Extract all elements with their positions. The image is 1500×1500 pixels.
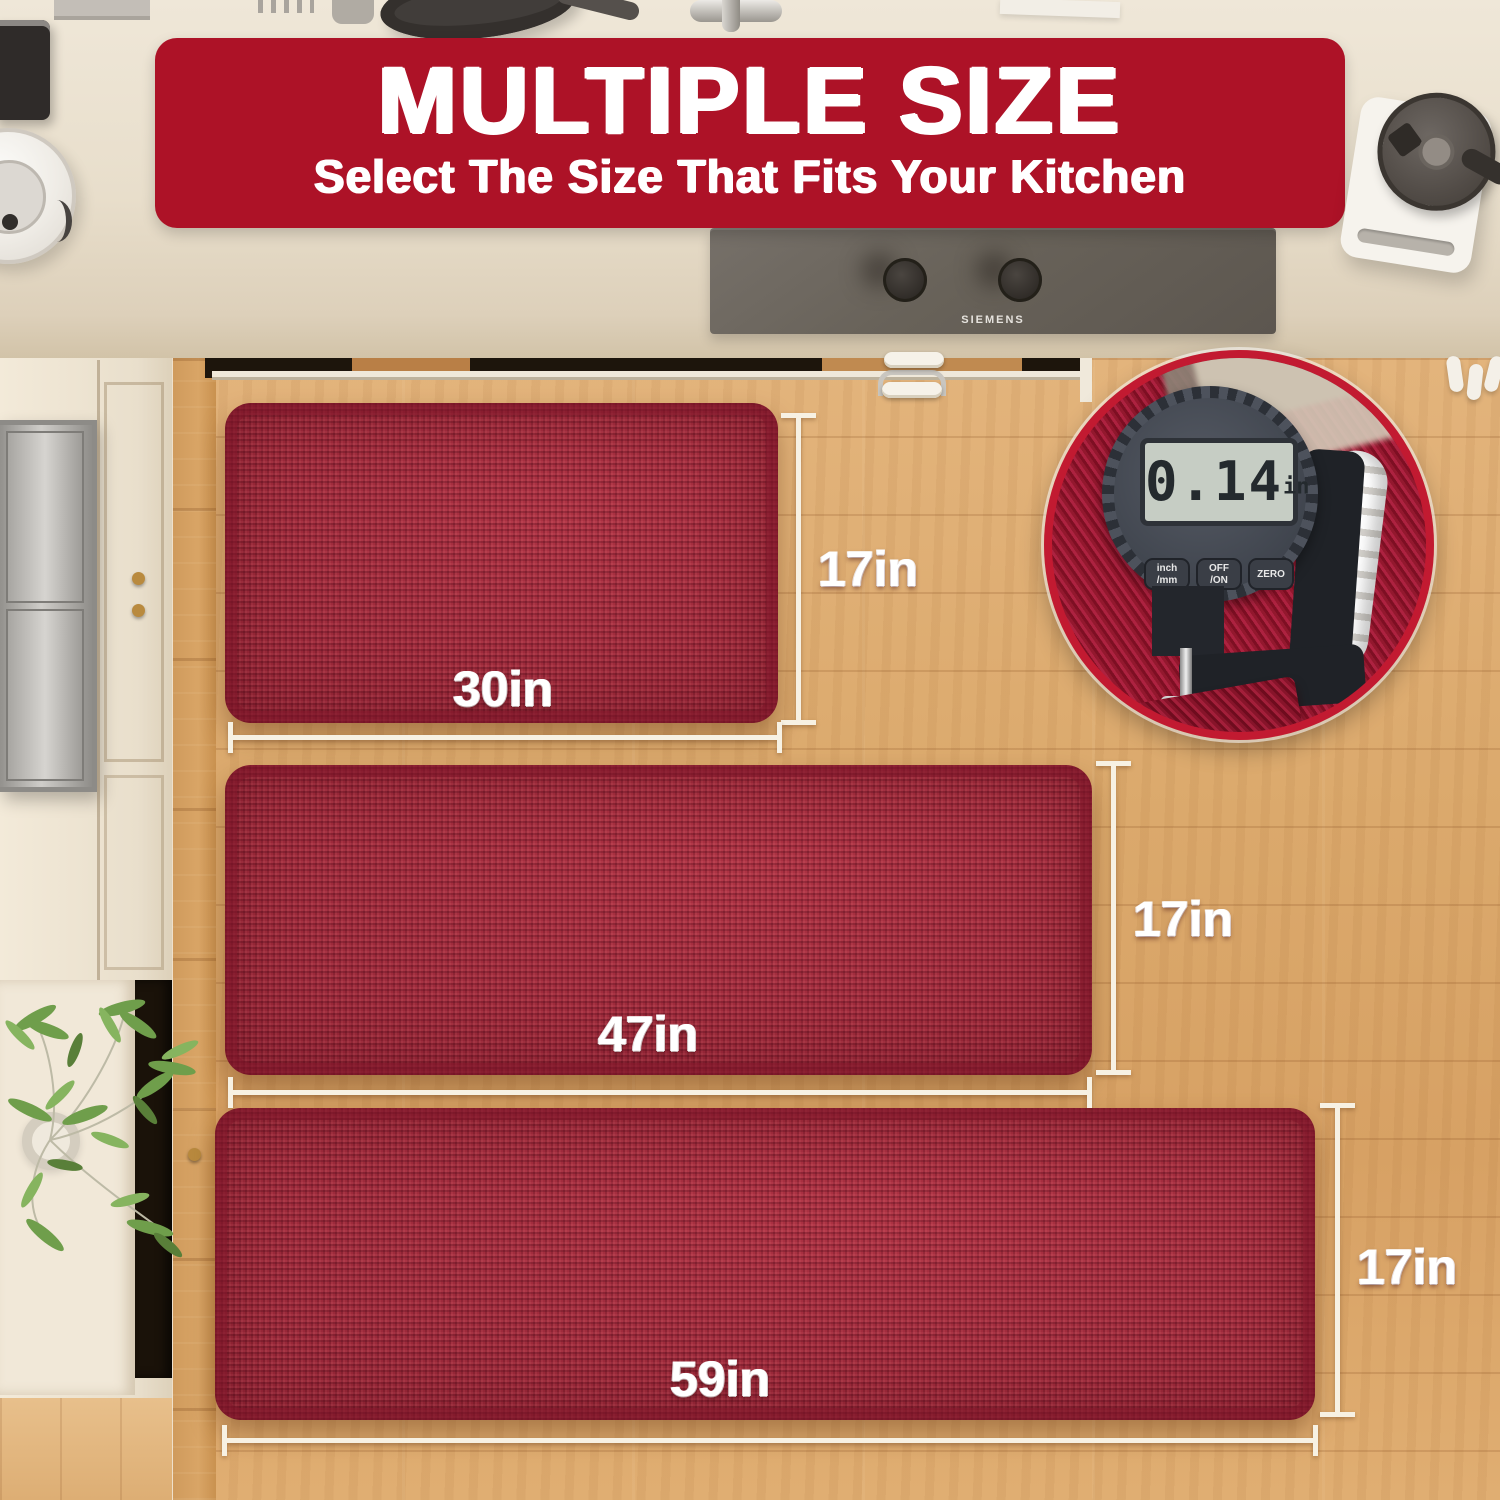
- kettle-base-controls: [1356, 228, 1455, 257]
- dim-line-width-mat3: [222, 1438, 1318, 1443]
- mat-width-label: 47in: [553, 1005, 743, 1063]
- counter-end-strip: [1080, 358, 1092, 402]
- lcd-unit: in: [1283, 475, 1310, 500]
- door-frame: [172, 358, 216, 1500]
- dim-line-width-mat2: [228, 1090, 1092, 1095]
- cabinet-handle-bottom: [882, 382, 942, 398]
- gauge-button-zero: ZERO: [1248, 558, 1294, 590]
- counter-rail: [212, 371, 1080, 380]
- kettle-handle: [42, 200, 72, 242]
- banner-title: MULTIPLE SIZE: [155, 54, 1345, 149]
- mat-height-label: 17in: [1327, 1238, 1487, 1296]
- cooktop: SIEMENS: [710, 228, 1276, 334]
- cooktop-knob-right: [998, 258, 1042, 302]
- cabinet-knob: [132, 572, 145, 585]
- faucet-spout: [722, 0, 740, 32]
- coffee-machine: [0, 20, 50, 120]
- cabinet-panel: [104, 775, 164, 970]
- electric-kettle-right: [1338, 95, 1494, 276]
- utensil-rack: [258, 0, 314, 13]
- lcd-value: 0.14: [1145, 450, 1283, 513]
- cabinet-seam: [97, 360, 100, 980]
- mat-height-label: 17in: [1103, 890, 1263, 948]
- mat-height-label: 17in: [788, 540, 948, 598]
- gauge-neck: [1152, 586, 1224, 656]
- banner-subtitle: Select The Size That Fits Your Kitchen: [155, 153, 1345, 199]
- utensil-cup: [332, 0, 374, 24]
- banner: MULTIPLE SIZE Select The Size That Fits …: [155, 38, 1345, 228]
- cabinet-panel: [104, 382, 164, 762]
- appliance-door-bottom: [6, 609, 84, 781]
- appliance-door-top: [6, 431, 84, 603]
- floor-patch: [0, 1395, 172, 1500]
- cooktop-brand: SIEMENS: [710, 314, 1276, 326]
- dim-line-width-mat1: [228, 735, 782, 740]
- plant: [0, 980, 200, 1280]
- gauge-lcd: 0.14in: [1140, 438, 1298, 526]
- mat-width-label: 59in: [625, 1350, 815, 1408]
- cooktop-knob-left: [883, 258, 927, 302]
- steel-appliance: [0, 420, 97, 792]
- kettle-knob: [2, 214, 18, 230]
- mat-width-label: 30in: [408, 660, 598, 718]
- thickness-inset-circle: 0.14in inch /mm OFF /ON ZERO: [1044, 350, 1434, 740]
- kettle-lid-hub: [1416, 131, 1457, 172]
- cabinet-handle-top: [884, 352, 944, 368]
- product-infographic: SIEMENS: [0, 0, 1500, 1500]
- cabinet-knob: [132, 604, 145, 617]
- counter-tray: [54, 0, 150, 20]
